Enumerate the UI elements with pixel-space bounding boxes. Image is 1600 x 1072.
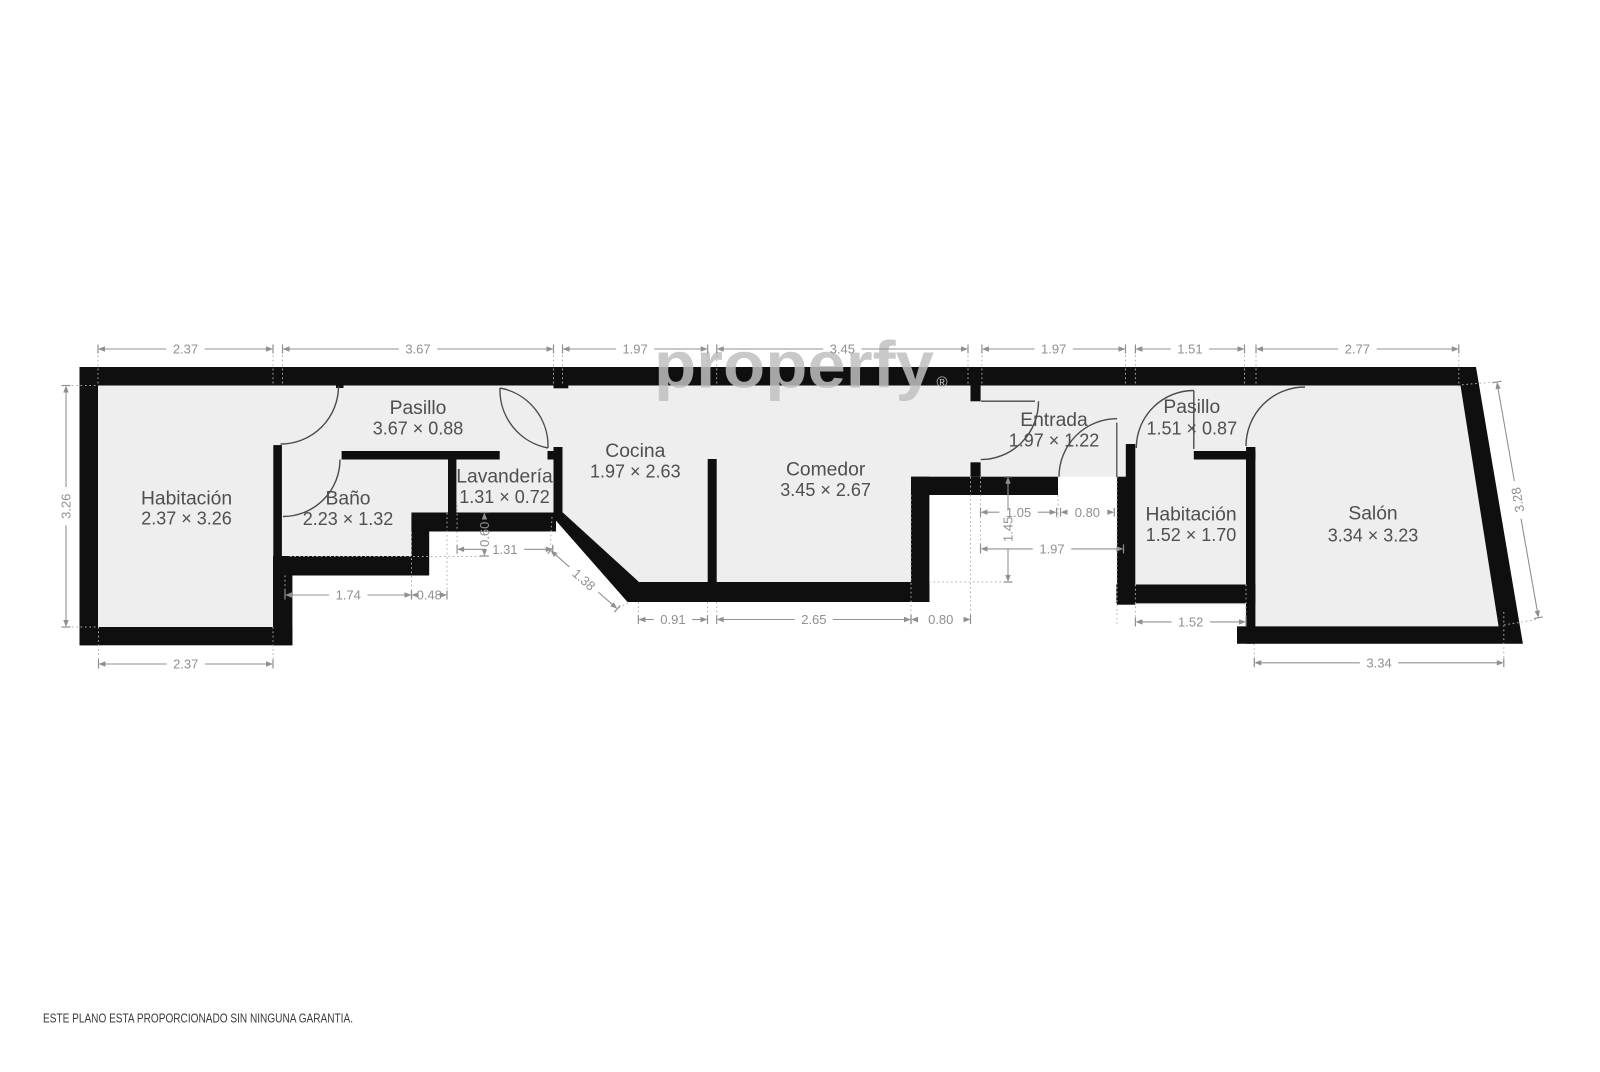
svg-text:Baño: Baño — [325, 489, 370, 510]
svg-text:0.80: 0.80 — [928, 612, 953, 627]
svg-text:properfy: properfy — [654, 328, 934, 402]
svg-text:2.37: 2.37 — [173, 342, 198, 357]
svg-text:1.97: 1.97 — [1039, 542, 1064, 557]
svg-text:ESTE PLANO ESTA PROPORCIONADO: ESTE PLANO ESTA PROPORCIONADO SIN NINGUN… — [43, 1011, 353, 1026]
svg-text:2.77: 2.77 — [1345, 342, 1370, 357]
svg-text:3.34: 3.34 — [1366, 655, 1391, 670]
svg-text:1.97 × 2.63: 1.97 × 2.63 — [590, 462, 681, 482]
svg-text:3.67: 3.67 — [405, 342, 430, 357]
svg-text:1.45: 1.45 — [1001, 517, 1016, 542]
svg-text:0.60: 0.60 — [477, 522, 492, 547]
svg-text:Habitación: Habitación — [141, 489, 232, 510]
svg-text:1.51 × 0.87: 1.51 × 0.87 — [1147, 419, 1238, 439]
svg-text:1.97: 1.97 — [1041, 342, 1066, 357]
svg-text:0.80: 0.80 — [1075, 505, 1100, 520]
svg-text:Pasillo: Pasillo — [390, 398, 447, 419]
svg-text:Entrada: Entrada — [1020, 410, 1088, 431]
svg-text:Comedor: Comedor — [786, 460, 866, 481]
svg-text:1.52: 1.52 — [1178, 615, 1203, 630]
svg-text:3.34 × 3.23: 3.34 × 3.23 — [1328, 525, 1419, 545]
svg-text:2.23 × 1.32: 2.23 × 1.32 — [303, 509, 394, 529]
svg-text:0.91: 0.91 — [660, 612, 685, 627]
svg-text:2.37: 2.37 — [173, 657, 198, 672]
svg-text:1.97: 1.97 — [622, 342, 647, 357]
svg-text:Pasillo: Pasillo — [1163, 397, 1220, 418]
svg-text:2.65: 2.65 — [801, 612, 826, 627]
svg-text:0.48: 0.48 — [417, 588, 442, 603]
svg-text:1.74: 1.74 — [336, 588, 361, 603]
svg-text:2.37 × 3.26: 2.37 × 3.26 — [141, 509, 232, 529]
svg-text:Cocina: Cocina — [605, 441, 665, 462]
svg-text:1.52 × 1.70: 1.52 × 1.70 — [1146, 525, 1237, 545]
svg-text:1.31 × 0.72: 1.31 × 0.72 — [459, 487, 550, 507]
svg-text:Habitación: Habitación — [1145, 504, 1236, 525]
svg-text:®: ® — [937, 374, 948, 391]
svg-text:3.45: 3.45 — [830, 342, 855, 357]
svg-text:Salón: Salón — [1348, 504, 1397, 525]
svg-text:1.97 × 1.22: 1.97 × 1.22 — [1009, 431, 1100, 451]
svg-text:1.31: 1.31 — [492, 542, 517, 557]
svg-text:3.67 × 0.88: 3.67 × 0.88 — [373, 419, 464, 439]
svg-text:1.51: 1.51 — [1177, 342, 1202, 357]
svg-text:3.45 × 2.67: 3.45 × 2.67 — [780, 480, 871, 500]
svg-text:Lavandería: Lavandería — [456, 466, 553, 487]
svg-text:3.26: 3.26 — [59, 494, 74, 519]
